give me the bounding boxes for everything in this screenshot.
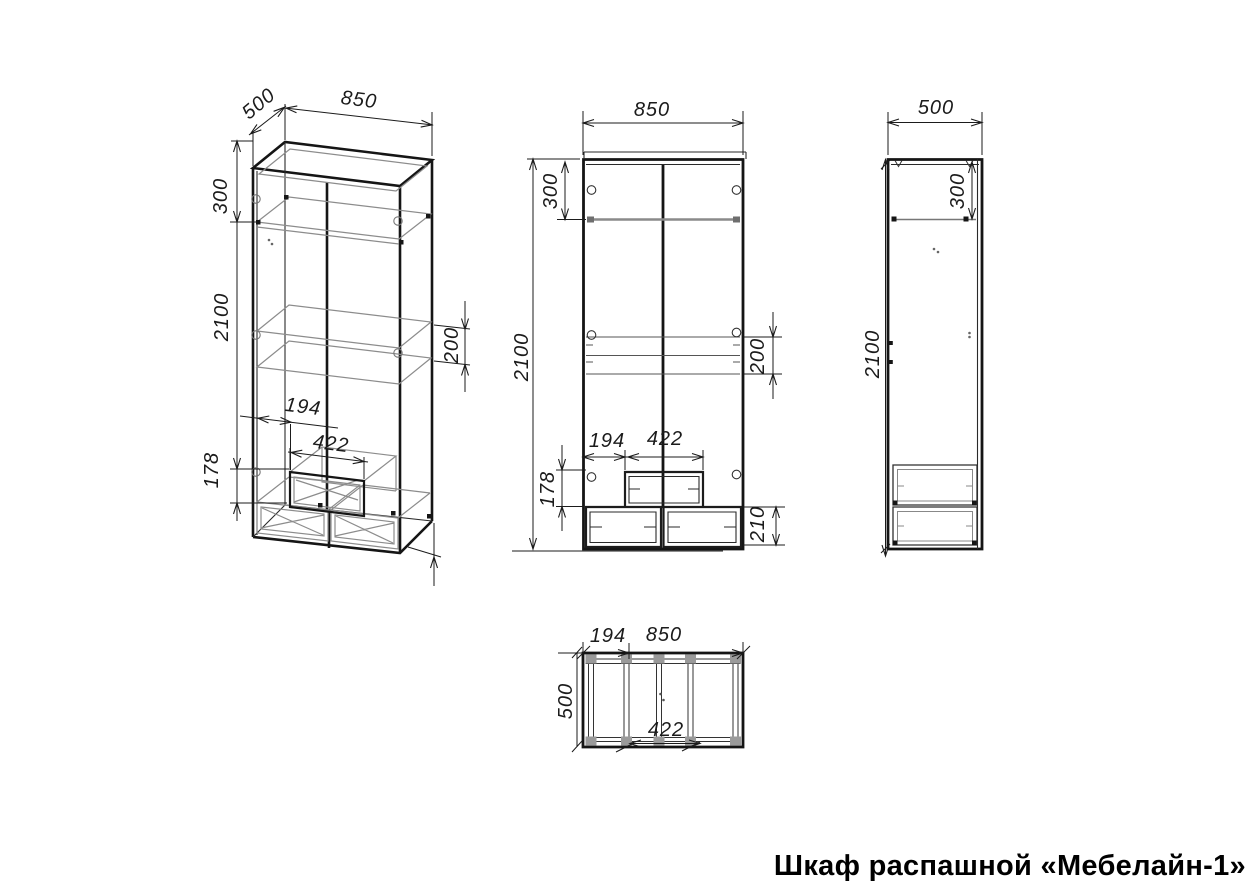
dim-plan-drawer-width: 422 bbox=[648, 719, 684, 741]
plan-view: 194 850 500 422 bbox=[555, 624, 750, 752]
drawing-title: Шкаф распашной «Мебелайн-1» bbox=[774, 850, 1246, 883]
dim-side-depth: 500 bbox=[918, 97, 954, 119]
dim-front-drawer-width: 422 bbox=[647, 428, 683, 450]
iso-shelves bbox=[257, 149, 431, 384]
dim-front-drawer-offset: 194 bbox=[589, 430, 625, 452]
dim-front-bottom-drawer-height: 210 bbox=[747, 506, 769, 543]
isometric-view: 500 850 300 2100 178 200 194 422 bbox=[201, 84, 470, 586]
dim-iso-drawer-width: 422 bbox=[312, 431, 351, 457]
dim-front-width: 850 bbox=[634, 99, 670, 121]
dim-front-top-section: 300 bbox=[540, 173, 562, 209]
dim-plan-depth: 500 bbox=[555, 683, 577, 719]
dim-plan-width: 850 bbox=[646, 624, 682, 646]
technical-drawing-svg: 500 850 300 2100 178 200 194 422 850 210… bbox=[0, 0, 1260, 892]
dim-front-height: 2100 bbox=[511, 333, 533, 383]
side-top-notches bbox=[895, 161, 973, 167]
side-connector-marks bbox=[889, 217, 977, 546]
front-panel-lines bbox=[584, 152, 746, 543]
side-drawer-boxes bbox=[893, 465, 977, 545]
dim-iso-top-section: 300 bbox=[210, 178, 232, 214]
dim-iso-shelf-gap: 200 bbox=[441, 327, 463, 364]
dim-front-drawer-height: 178 bbox=[537, 471, 559, 507]
iso-drawers-wireframe bbox=[257, 447, 430, 549]
front-cabinet-outline bbox=[584, 160, 744, 550]
dim-iso-height: 2100 bbox=[211, 293, 233, 343]
dim-plan-offset: 194 bbox=[590, 625, 626, 647]
dim-iso-width: 850 bbox=[340, 87, 379, 113]
dim-side-height: 2100 bbox=[862, 330, 884, 380]
drawing-canvas: 500 850 300 2100 178 200 194 422 850 210… bbox=[0, 0, 1260, 892]
front-view: 850 2100 300 200 194 422 178 210 bbox=[511, 99, 785, 551]
iso-pin-dots bbox=[268, 239, 274, 246]
dim-iso-drawer-offset: 194 bbox=[284, 394, 323, 420]
dim-iso-depth: 500 bbox=[238, 84, 280, 124]
side-pin-dots bbox=[933, 248, 971, 339]
side-view: 500 300 2100 bbox=[862, 97, 982, 556]
iso-connector-marks bbox=[256, 195, 432, 519]
dim-side-top-section: 300 bbox=[947, 173, 969, 209]
dim-front-shelf-gap: 200 bbox=[747, 338, 769, 375]
dim-iso-drawer-height: 178 bbox=[201, 452, 223, 488]
